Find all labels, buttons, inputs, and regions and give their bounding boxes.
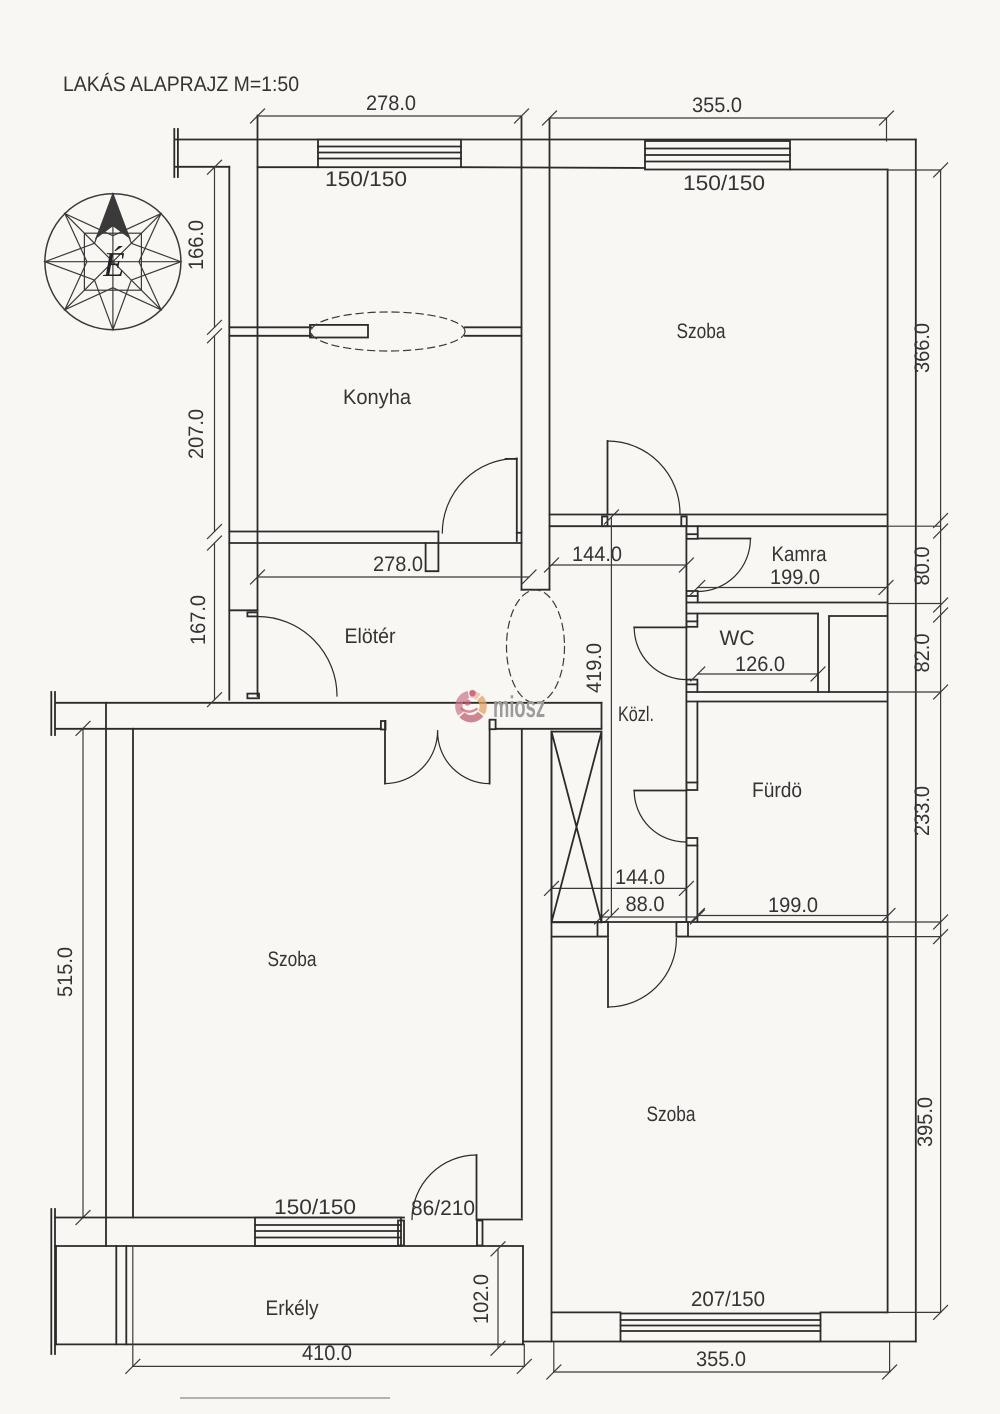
svg-text:126.0: 126.0 [735,653,785,676]
svg-text:355.0: 355.0 [696,1348,746,1371]
svg-text:150/150: 150/150 [325,168,407,191]
svg-text:355.0: 355.0 [692,94,742,117]
svg-text:278.0: 278.0 [366,92,416,115]
svg-text:86/210: 86/210 [411,1197,475,1220]
svg-text:199.0: 199.0 [770,566,820,589]
svg-text:88.0: 88.0 [626,893,665,916]
svg-text:278.0: 278.0 [373,553,423,576]
svg-text:410.0: 410.0 [302,1342,352,1365]
svg-text:167.0: 167.0 [187,595,210,645]
svg-text:80.0: 80.0 [911,547,934,586]
svg-text:É: É [102,245,124,284]
svg-text:166.0: 166.0 [185,220,208,270]
svg-text:395.0: 395.0 [914,1097,937,1147]
svg-text:LAKÁS ALAPRAJZ M=1:50: LAKÁS ALAPRAJZ M=1:50 [63,72,299,96]
svg-text:150/150: 150/150 [683,172,765,195]
svg-text:Fürdö: Fürdö [752,779,802,802]
svg-text:Közl.: Közl. [618,703,654,726]
svg-text:Szoba: Szoba [677,320,726,343]
svg-text:419.0: 419.0 [583,643,606,693]
svg-text:144.0: 144.0 [572,543,622,566]
svg-text:Elötér: Elötér [345,625,396,648]
svg-text:102.0: 102.0 [470,1274,493,1324]
svg-text:82.0: 82.0 [911,634,934,673]
svg-text:Szoba: Szoba [268,948,317,971]
svg-text:miosz: miosz [493,691,545,724]
svg-text:150/150: 150/150 [274,1196,356,1219]
svg-text:144.0: 144.0 [615,866,665,889]
svg-text:233.0: 233.0 [911,786,934,836]
svg-text:Szoba: Szoba [647,1103,696,1126]
svg-text:207/150: 207/150 [691,1288,765,1311]
svg-text:207.0: 207.0 [185,409,208,459]
svg-text:Kamra: Kamra [772,543,827,566]
svg-text:366.0: 366.0 [911,323,934,373]
svg-text:WC: WC [720,627,755,650]
svg-text:199.0: 199.0 [768,894,818,917]
svg-text:515.0: 515.0 [54,947,77,997]
svg-text:Erkély: Erkély [266,1297,319,1320]
svg-text:Konyha: Konyha [343,386,411,409]
